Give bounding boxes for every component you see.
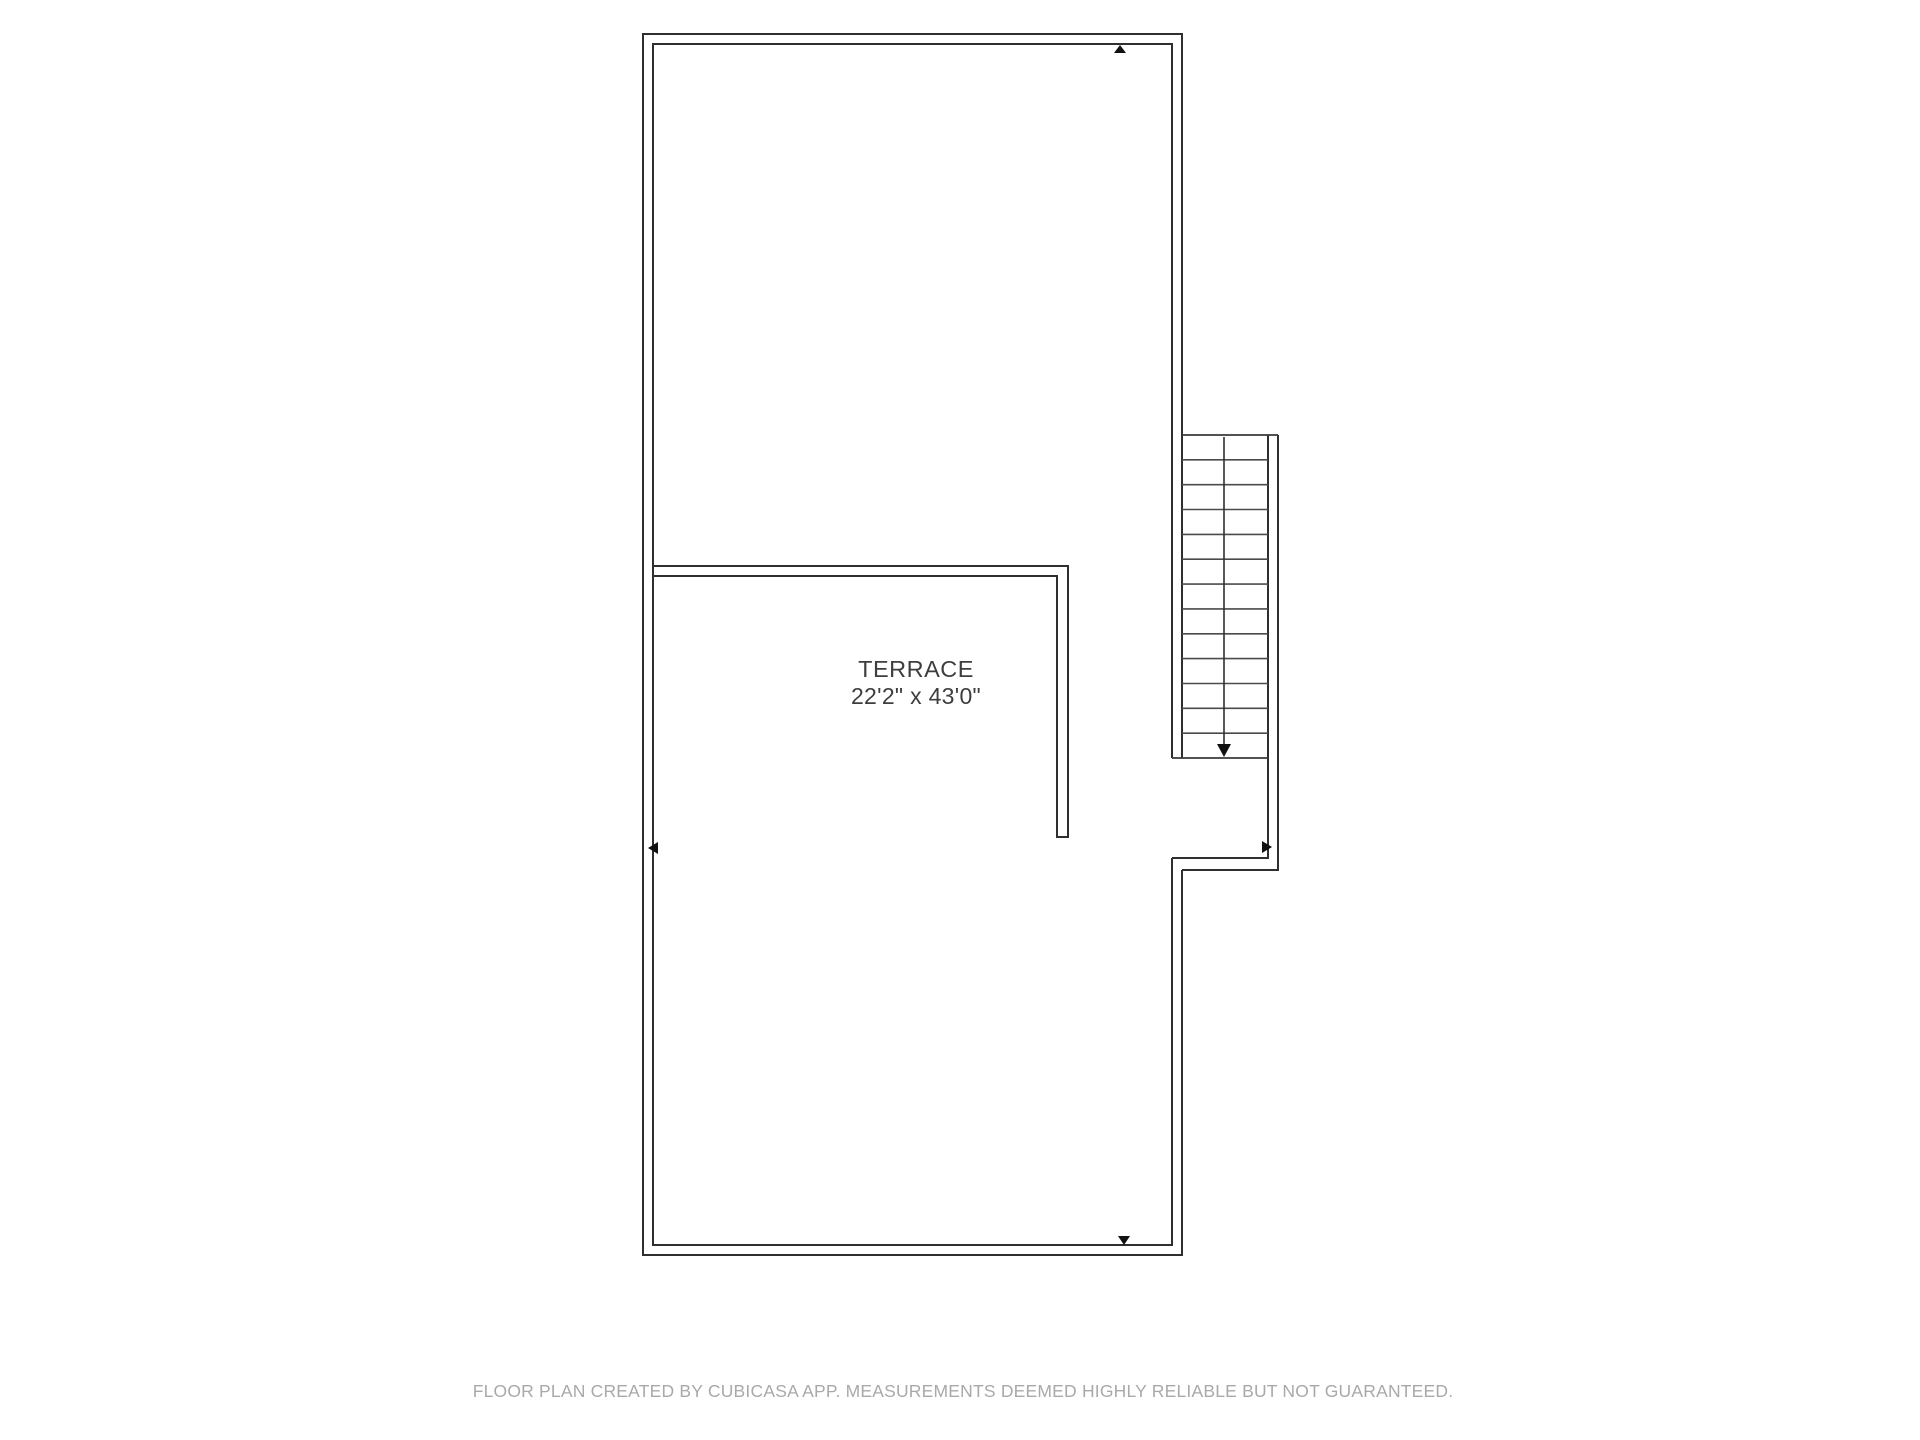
stair-enclosure-wall-inner (1172, 435, 1268, 858)
stair-enclosure-wall-outer (1182, 435, 1278, 870)
stair-down-arrow-icon (1217, 744, 1231, 757)
floor-plan-canvas: TERRACE 22'2" x 43'0" FLOOR PLAN CREATED… (0, 0, 1920, 1440)
room-name-label: TERRACE (858, 656, 974, 682)
staircase-treads (1182, 460, 1268, 733)
exterior-wall-inner (653, 44, 1172, 1245)
arrow-down-marker-icon (1118, 1236, 1130, 1245)
footer-disclaimer: FLOOR PLAN CREATED BY CUBICASA APP. MEAS… (473, 1381, 1454, 1401)
floor-plan-page: TERRACE 22'2" x 43'0" FLOOR PLAN CREATED… (0, 0, 1920, 1440)
arrow-up-marker-icon (1114, 45, 1126, 53)
room-dimensions-label: 22'2" x 43'0" (851, 683, 981, 709)
exterior-wall-outer (643, 34, 1182, 1255)
